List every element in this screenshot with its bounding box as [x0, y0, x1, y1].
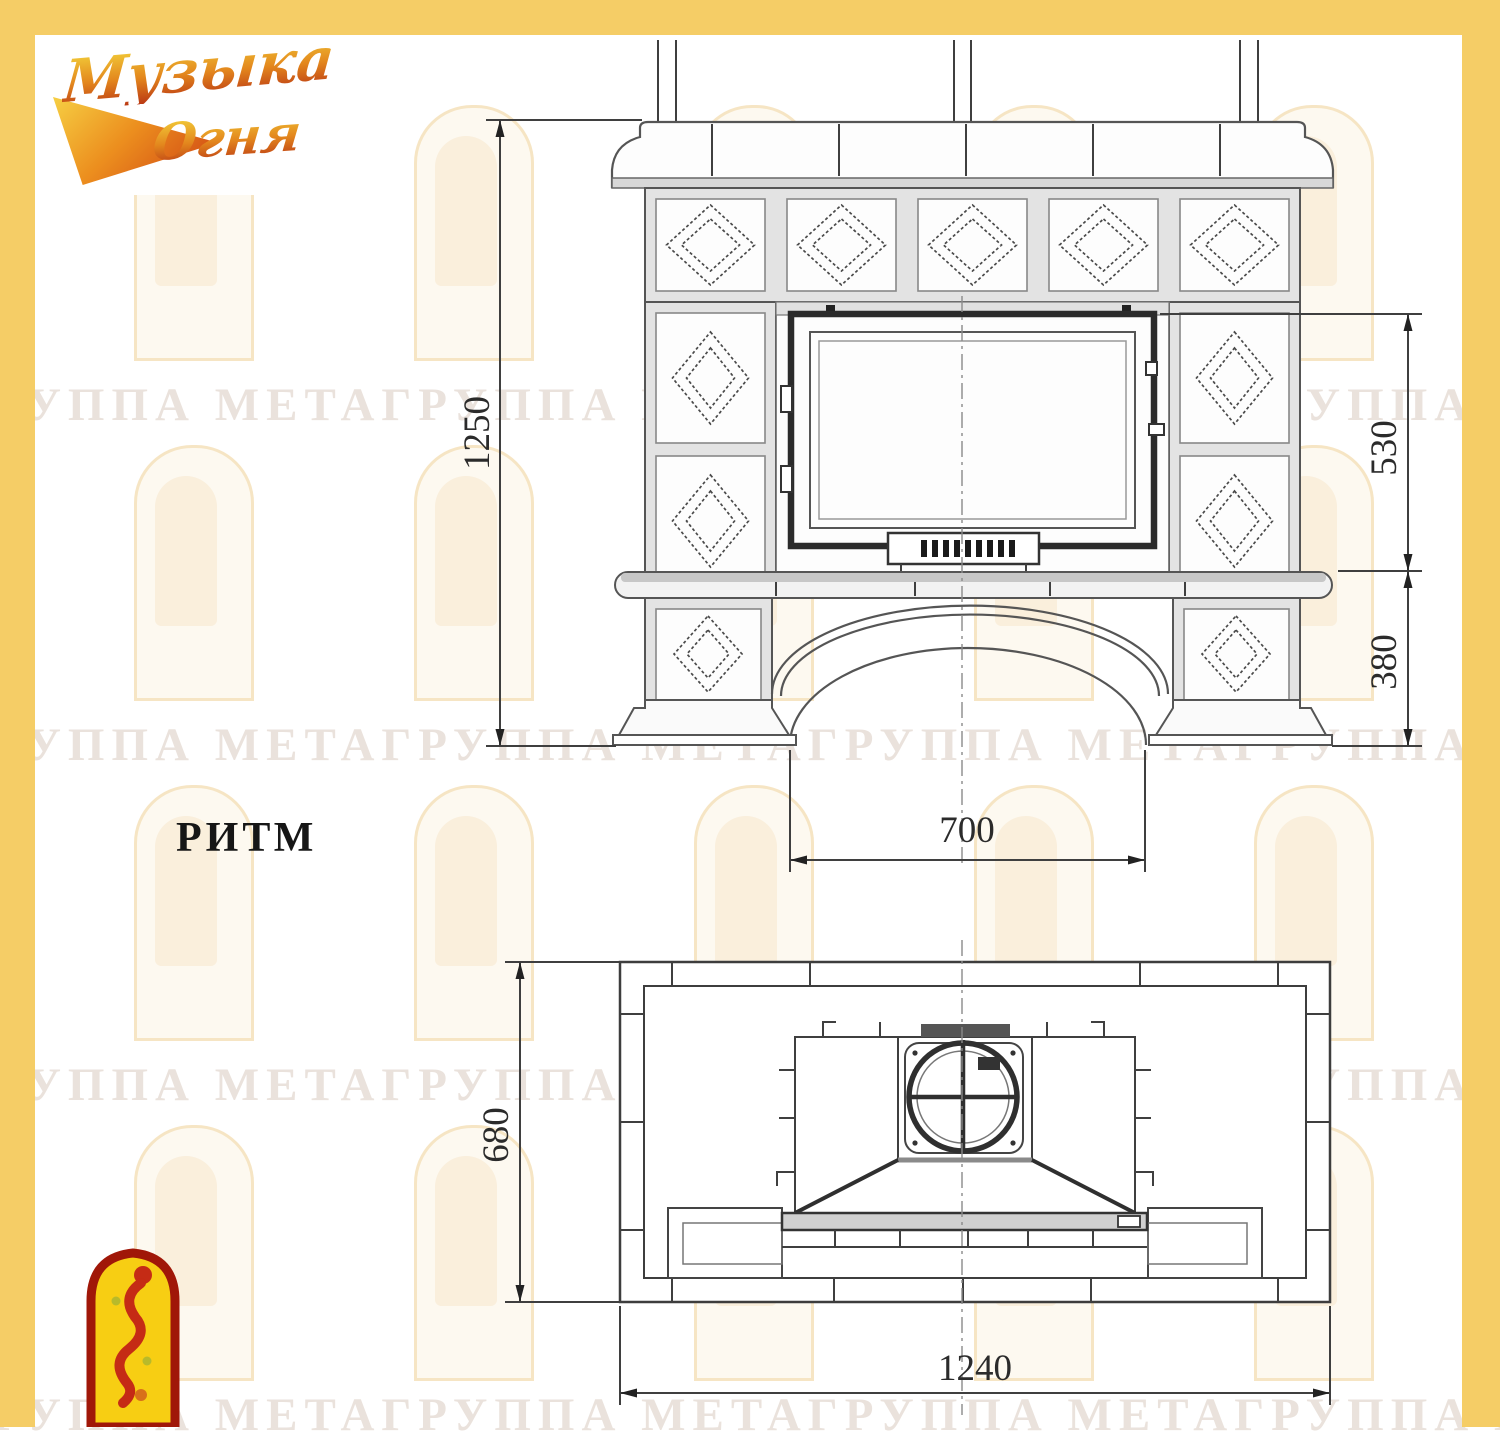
door-latch [1146, 362, 1157, 375]
flue-collar [921, 1024, 1010, 1037]
logo-word-ognya: Огня [151, 108, 304, 169]
dim-base-height-label: 380 [1364, 634, 1405, 690]
door-hinge [781, 466, 792, 492]
fireplace-technical-drawing: 1250 530 380 700 [0, 0, 1500, 1427]
frame-strip-top [0, 0, 1500, 35]
door-hinge [781, 386, 792, 412]
dim-depth-label: 680 [476, 1107, 517, 1163]
dim-opening-width-label: 700 [939, 810, 995, 851]
vent-grille [888, 533, 1039, 564]
firebox-door [791, 314, 1154, 546]
muzyka-ognya-logo: Музыка Огня [35, 35, 320, 195]
dim-overall-width-label: 1240 [938, 1348, 1012, 1389]
logo-word-muzyka: Музыка [61, 29, 337, 111]
dim-firebox-height-label: 530 [1364, 420, 1405, 476]
front-view-drawing [612, 40, 1333, 868]
dim-overall-height-label: 1250 [457, 396, 498, 470]
frame-strip-left [0, 0, 35, 1427]
damper-handle [978, 1057, 1000, 1070]
door-handle [1149, 424, 1164, 435]
firebird-emblem [83, 1243, 183, 1427]
plan-view-drawing [620, 940, 1330, 1415]
frame-strip-right [1462, 0, 1500, 1427]
model-title: РИТМ [176, 814, 317, 862]
hearth-front-plate [782, 1213, 1147, 1230]
